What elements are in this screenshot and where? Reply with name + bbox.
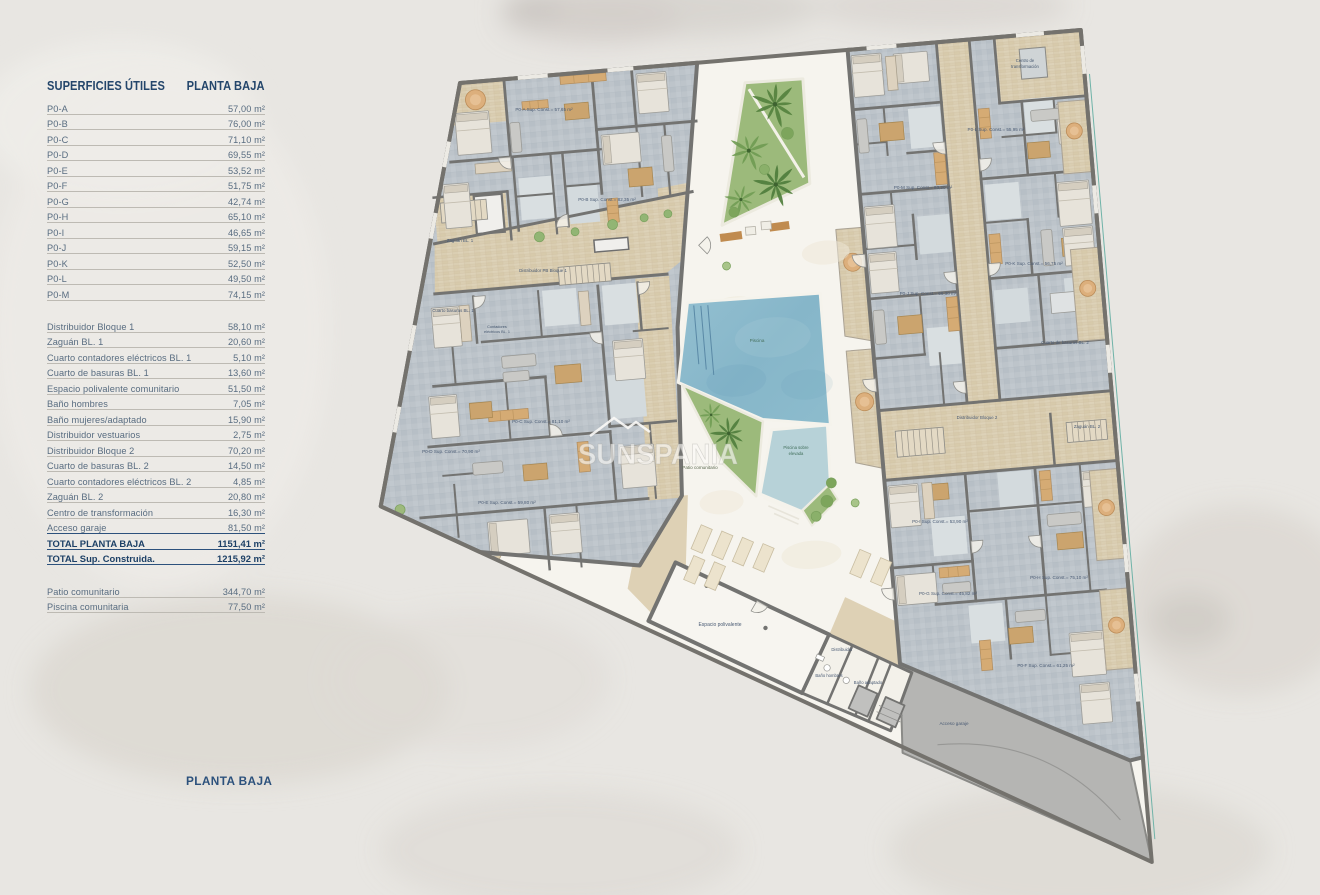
svg-text:Baño adaptado: Baño adaptado bbox=[854, 680, 883, 685]
svg-text:P0-A Sup. Const.= 57,65 m²: P0-A Sup. Const.= 57,65 m² bbox=[515, 107, 573, 112]
svg-text:P0-G Sup. Const.= 45,82 m²: P0-G Sup. Const.= 45,82 m² bbox=[919, 591, 978, 596]
svg-text:Espacio polivalente: Espacio polivalente bbox=[698, 622, 741, 628]
svg-text:Cuarto de basuras BL. 2: Cuarto de basuras BL. 2 bbox=[1041, 340, 1089, 345]
svg-text:Cuarto basuras BL. 1: Cuarto basuras BL. 1 bbox=[432, 308, 474, 313]
svg-text:P0-D Sup. Const.= 70,90 m²: P0-D Sup. Const.= 70,90 m² bbox=[422, 449, 480, 454]
svg-text:P0-K Sup. Const.= 56,75 m²: P0-K Sup. Const.= 56,75 m² bbox=[1005, 261, 1063, 266]
svg-text:Piscina sobre: Piscina sobre bbox=[783, 445, 809, 450]
svg-text:Distribuidor: Distribuidor bbox=[831, 647, 853, 652]
svg-text:P0-E Sup. Const.= 59,80 m²: P0-E Sup. Const.= 59,80 m² bbox=[478, 500, 536, 505]
svg-text:P0-J Sup. Const.= 66,30 m²: P0-J Sup. Const.= 66,30 m² bbox=[900, 291, 957, 296]
svg-text:Patio comunitario: Patio comunitario bbox=[682, 465, 718, 470]
svg-text:P0-I Sup. Const.= 53,90 m²: P0-I Sup. Const.= 53,90 m² bbox=[912, 519, 968, 524]
svg-text:P0-B Sup. Const.= 82,35 m²: P0-B Sup. Const.= 82,35 m² bbox=[578, 197, 636, 202]
svg-text:Contadores: Contadores bbox=[487, 325, 507, 329]
svg-text:Centro de: Centro de bbox=[1016, 58, 1035, 63]
svg-text:Piscina: Piscina bbox=[750, 338, 765, 343]
svg-text:eléctricos BL. 1: eléctricos BL. 1 bbox=[484, 330, 510, 334]
svg-text:Distribuidor PB Bloque 1: Distribuidor PB Bloque 1 bbox=[519, 268, 567, 273]
svg-text:Acceso garaje: Acceso garaje bbox=[939, 721, 969, 726]
svg-text:P0-L Sup. Const.= 55,95 m²: P0-L Sup. Const.= 55,95 m² bbox=[968, 127, 1025, 132]
svg-text:Baño hombres: Baño hombres bbox=[815, 673, 842, 678]
svg-text:elevada: elevada bbox=[789, 451, 804, 456]
svg-text:transformación: transformación bbox=[1011, 64, 1039, 69]
svg-text:P0-H Sup. Const.= 75,10 m²: P0-H Sup. Const.= 75,10 m² bbox=[1030, 575, 1088, 580]
svg-text:P0-F Sup. Const.= 61,25 m²: P0-F Sup. Const.= 61,25 m² bbox=[1017, 663, 1075, 668]
svg-text:P0-M Sup. Const.= 83,20 m²: P0-M Sup. Const.= 83,20 m² bbox=[894, 185, 953, 190]
svg-text:Zaguán BL. 1: Zaguán BL. 1 bbox=[447, 238, 474, 243]
svg-text:Distribuidor Bloque 2: Distribuidor Bloque 2 bbox=[957, 415, 998, 420]
svg-text:Zaguán BL. 2: Zaguán BL. 2 bbox=[1074, 424, 1101, 429]
svg-text:P0-C Sup. Const.= 81,10 m²: P0-C Sup. Const.= 81,10 m² bbox=[512, 419, 570, 424]
